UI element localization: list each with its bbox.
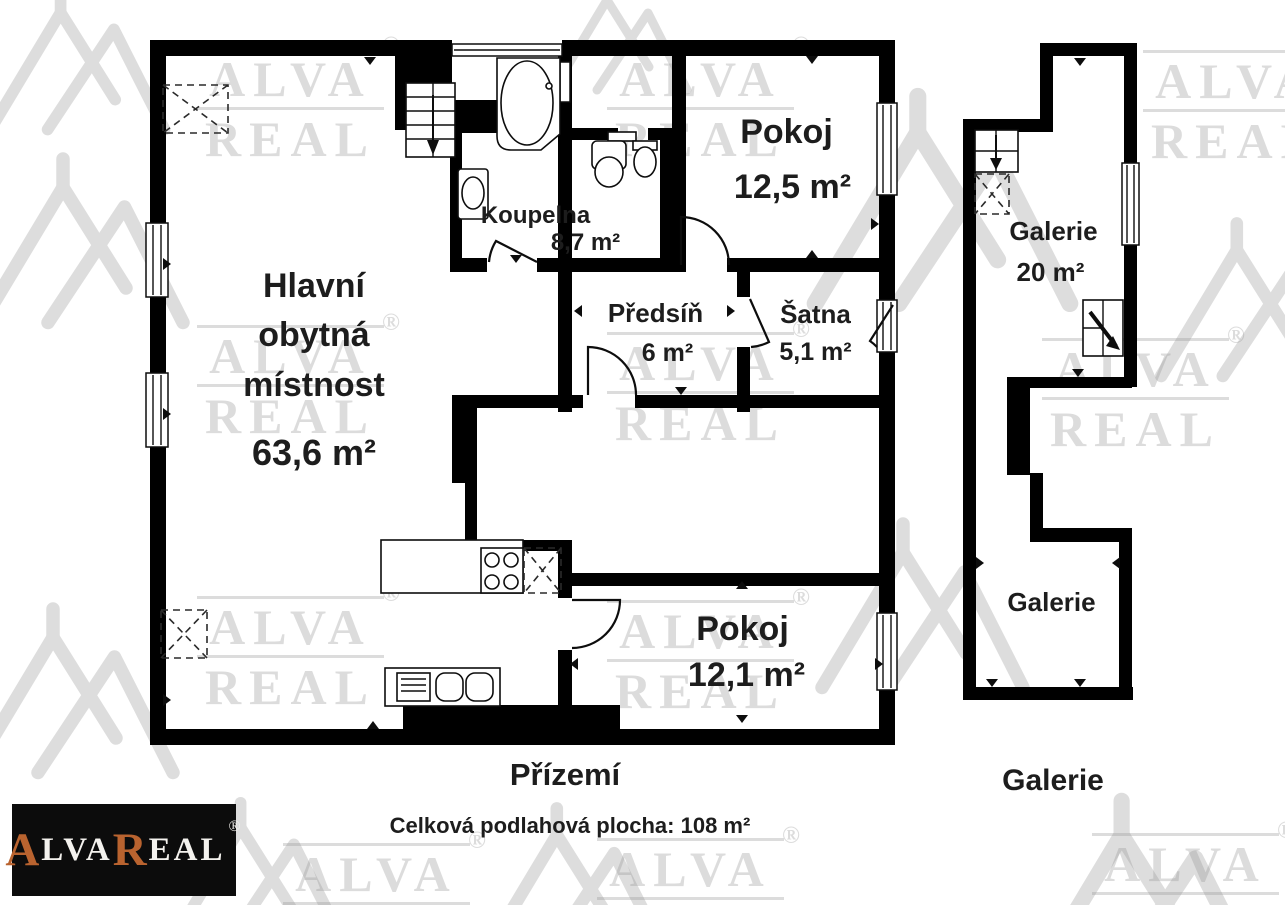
bidet-icon bbox=[633, 141, 657, 177]
closet-area: 5,1 m² bbox=[743, 338, 888, 367]
bathroom-label: Koupelna bbox=[468, 202, 603, 230]
room-top-door-icon bbox=[681, 217, 729, 265]
bathroom-area: 8,7 m² bbox=[518, 229, 653, 257]
bathtub-icon bbox=[497, 58, 560, 150]
registered-mark-icon: ® bbox=[229, 818, 243, 836]
room-bottom-label: Pokoj bbox=[650, 610, 835, 649]
toilet-icon bbox=[592, 132, 636, 187]
logo-word1-rest: LVA bbox=[41, 834, 112, 867]
winder-stairs-icon bbox=[1083, 300, 1123, 356]
floor-caption-gallery: Galerie bbox=[943, 764, 1163, 799]
closet-label: Šatna bbox=[743, 299, 888, 329]
total-area-caption: Celková podlahová plocha: 108 m² bbox=[260, 813, 880, 839]
floor-plan-canvas: ALVAREAL® ALVAREAL® ALVAREAL® ALVAREAL® … bbox=[0, 0, 1285, 905]
gallery-dashed-box-icon bbox=[975, 174, 1009, 214]
logo-word1-initial: A bbox=[5, 827, 41, 874]
logo-word2-initial: R bbox=[113, 827, 149, 874]
hall-area: 6 m² bbox=[595, 339, 740, 368]
kitchen-sink-icon bbox=[385, 668, 500, 706]
living-room-label: Hlavníobytnámístnost bbox=[168, 262, 460, 410]
room-top-area: 12,5 m² bbox=[700, 168, 885, 207]
window-icon bbox=[452, 44, 562, 56]
window-icon bbox=[877, 613, 897, 690]
window-icon bbox=[560, 62, 570, 102]
logo-word2-rest: EAL bbox=[149, 834, 226, 867]
room-bottom-door-icon bbox=[572, 600, 620, 648]
hall-label: Předsíň bbox=[583, 298, 728, 328]
gallery-staircase-icon bbox=[975, 130, 1018, 172]
room-bottom-area: 12,1 m² bbox=[654, 656, 839, 695]
room-top-label: Pokoj bbox=[694, 113, 879, 152]
staircase-icon bbox=[406, 83, 455, 157]
gallery-upper-area: 20 m² bbox=[978, 257, 1123, 287]
gallery-lower-label: Galerie bbox=[979, 587, 1124, 617]
gallery-upper-label: Galerie bbox=[981, 216, 1126, 246]
alva-real-logo: A LVA R EAL ® bbox=[12, 804, 236, 896]
floor-caption-main: Přízemí bbox=[455, 757, 675, 793]
living-room-area: 63,6 m² bbox=[168, 432, 460, 474]
stove-icon bbox=[481, 548, 523, 593]
